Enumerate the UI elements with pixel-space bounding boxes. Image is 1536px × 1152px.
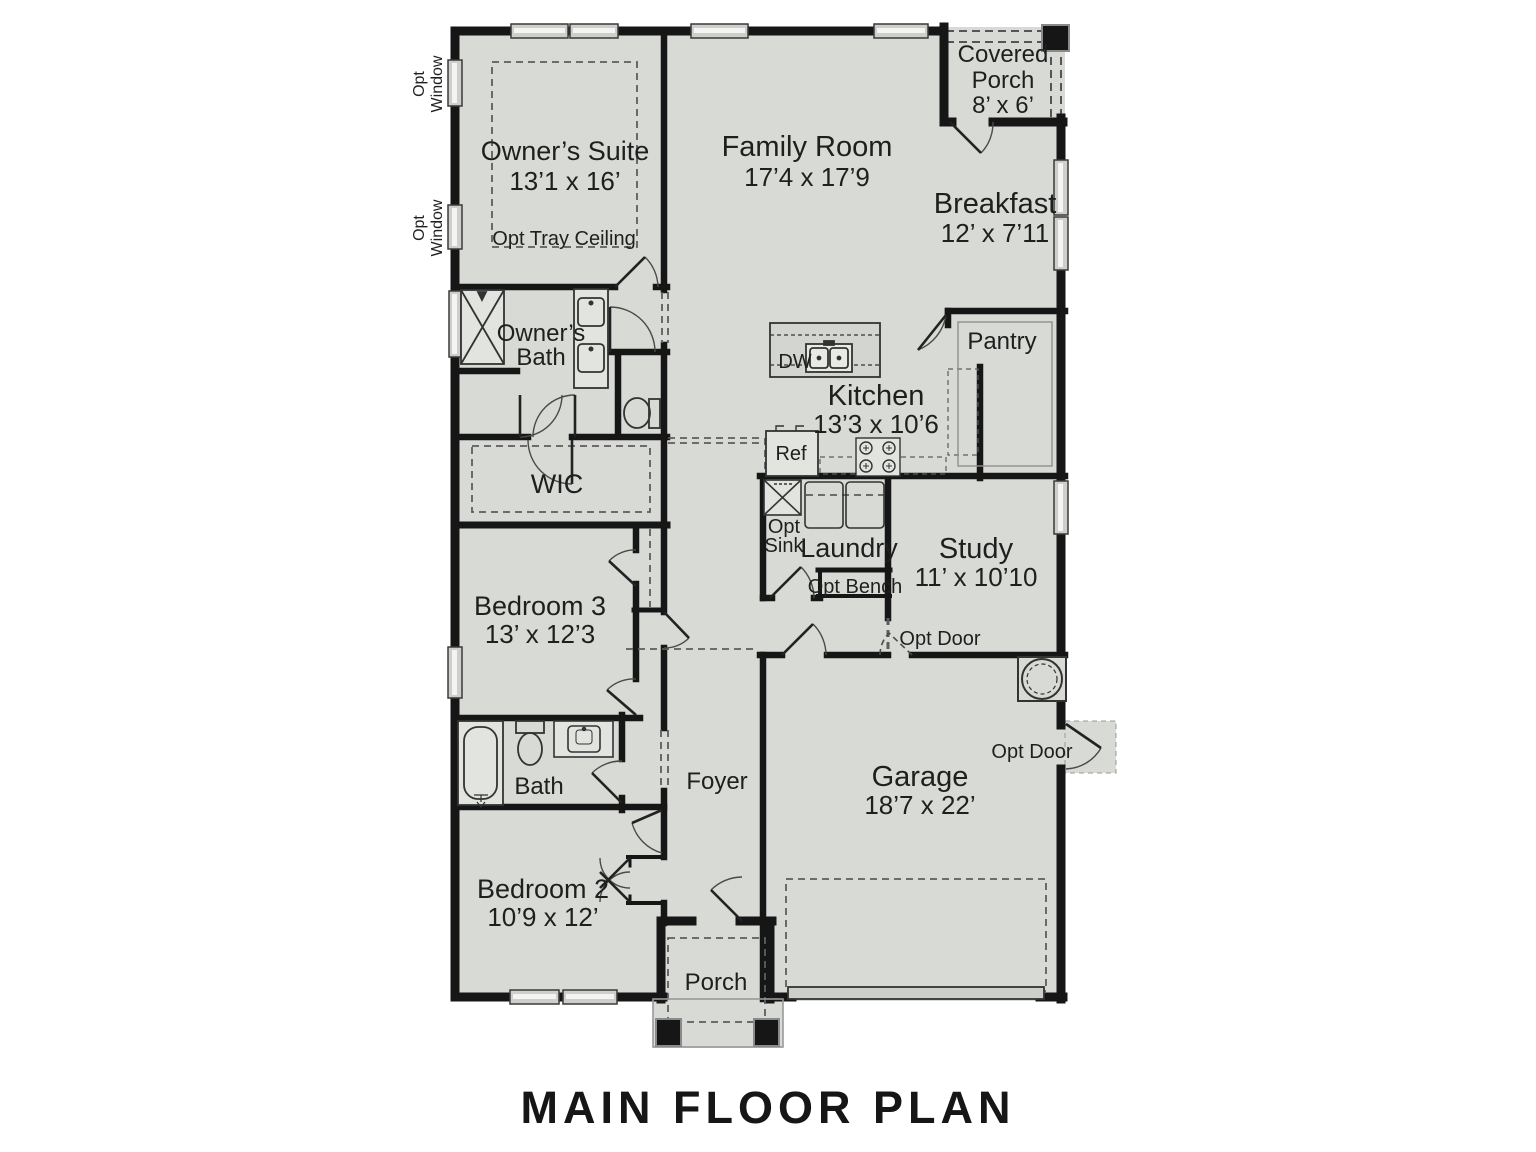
window-bedroom3 [448,647,462,698]
window-bedroom2-1 [510,990,559,1004]
garage-door-icon [788,987,1044,999]
kitchen-dims: 13’3 x 10’6 [813,409,939,439]
page-title: MAIN FLOOR PLAN [0,1082,1536,1134]
family-room-label: Family Room [722,131,893,163]
opt-window-label-1b: Window [429,55,446,112]
opt-sink-label-2: Sink [765,535,805,557]
vanity-sink-icon [554,721,613,757]
opt-sink-icon [764,480,801,515]
owners-bath-label-2: Bath [516,344,565,371]
window-study [1054,481,1068,534]
floor-plan-page: Owner’s Suite 13’1 x 16’ Opt Tray Ceilin… [0,0,1536,1152]
study-label: Study [939,533,1014,565]
dw-label: DW [778,351,811,373]
bedroom2-label: Bedroom 2 [477,874,609,904]
window-owners-suite-1 [448,60,462,106]
covered-porch-dims: 8’ x 6’ [972,92,1034,119]
bedroom3-dims: 13’ x 12’3 [485,619,595,649]
laundry-label: Laundry [800,533,898,563]
garage-dims: 18’7 x 22’ [864,790,975,820]
breakfast-dims: 12’ x 7’11 [941,218,1049,248]
owners-bath-label-1: Owner’s [497,320,585,347]
wic-label: WIC [531,469,583,499]
family-room-dims: 17’4 x 17’9 [744,162,870,192]
window-owners-suite-2 [448,205,462,249]
opt-window-label-2a: Opt [411,215,428,241]
covered-porch-label-2: Porch [972,67,1035,94]
porch-column [754,1019,779,1046]
opt-bench-label: Opt Bench [808,576,903,598]
opt-door-label-study: Opt Door [899,628,980,650]
window-top-family-b [874,24,928,38]
opt-window-label-1a: Opt [411,71,428,97]
window-top-suite-a [511,24,568,38]
foyer-label: Foyer [686,768,747,795]
owners-suite-dims: 13’1 x 16’ [509,166,620,196]
kitchen-label: Kitchen [828,380,925,412]
bathtub-icon [458,721,503,807]
window-top-family-a [691,24,748,38]
bedroom3-label: Bedroom 3 [474,591,606,621]
ref-label: Ref [775,443,807,465]
porch-column [656,1019,681,1046]
opt-window-label-2b: Window [429,199,446,256]
window-bedroom2-2 [563,990,617,1004]
water-heater-icon [1018,657,1066,701]
owners-suite-label: Owner’s Suite [481,136,650,166]
breakfast-label: Breakfast [934,188,1057,220]
study-dims: 11’ x 10’10 [915,562,1038,592]
porch-label: Porch [685,969,748,996]
opt-tray-ceiling-label: Opt Tray Ceiling [492,228,635,250]
window-shower [449,291,461,357]
stove-icon [856,438,900,476]
garage-label: Garage [872,761,969,793]
window-top-suite-b [570,24,618,38]
window-breakfast-2 [1054,217,1068,270]
pantry-label: Pantry [967,328,1036,355]
floor-plan-svg: Owner’s Suite 13’1 x 16’ Opt Tray Ceilin… [0,0,1536,1152]
opt-door-label-garage: Opt Door [991,741,1072,763]
bedroom2-dims: 10’9 x 12’ [487,902,598,932]
bath-label: Bath [514,773,563,800]
covered-porch-label-1: Covered [958,41,1049,68]
